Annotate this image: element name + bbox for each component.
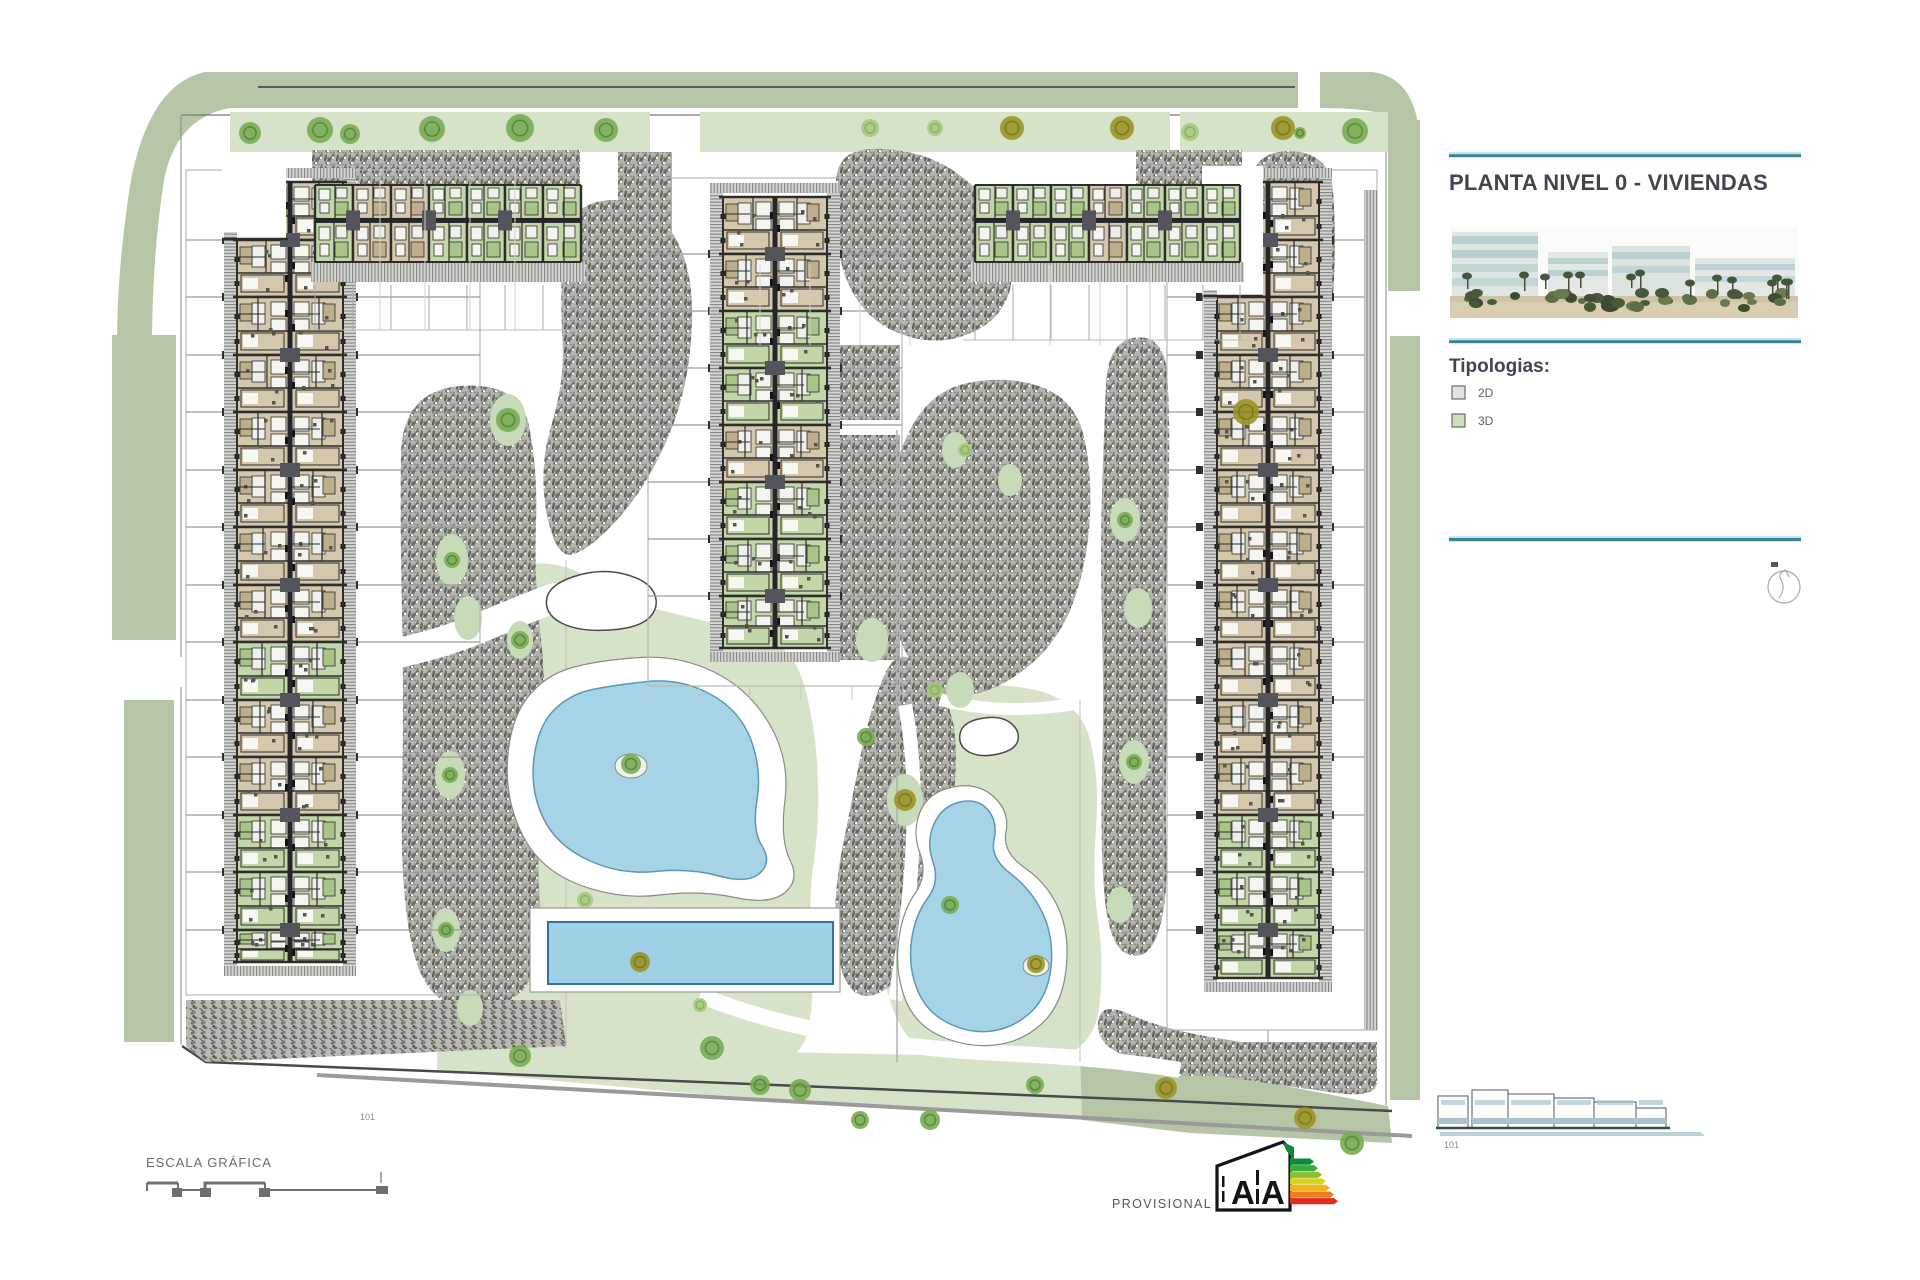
svg-text:101: 101 [360,1112,375,1122]
svg-text:PROVISIONAL: PROVISIONAL [1112,1197,1212,1211]
svg-text:3D: 3D [1478,414,1494,428]
svg-text:PLANTA NIVEL 0 - VIVIENDAS: PLANTA NIVEL 0 - VIVIENDAS [1449,170,1768,195]
svg-text:101: 101 [1444,1140,1459,1150]
svg-text:A: A [1261,1174,1285,1211]
svg-text:A: A [1231,1174,1255,1211]
svg-text:2D: 2D [1478,386,1494,400]
svg-text:ESCALA GRÁFICA: ESCALA GRÁFICA [146,1155,272,1170]
svg-text:Tipologias:: Tipologias: [1449,356,1550,377]
